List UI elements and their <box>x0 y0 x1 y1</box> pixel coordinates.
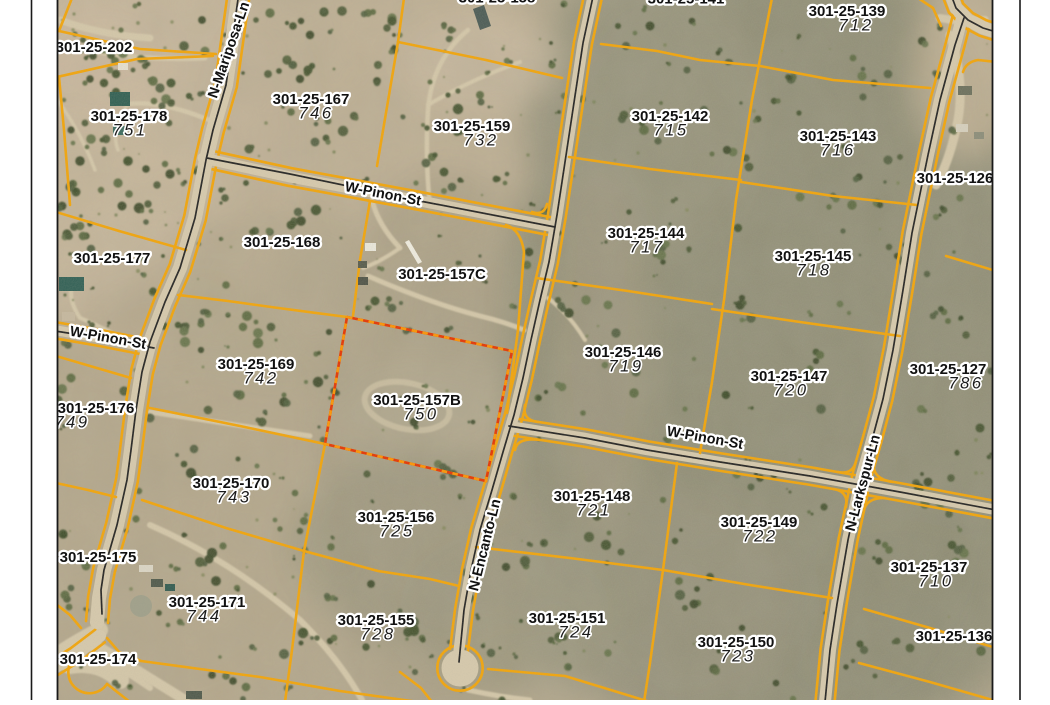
svg-text:301-25-145: 301-25-145 <box>775 248 852 265</box>
svg-text:301-25-156: 301-25-156 <box>358 509 435 526</box>
svg-text:301-25-155: 301-25-155 <box>338 612 415 629</box>
svg-text:301-25-151: 301-25-151 <box>529 610 606 627</box>
svg-text:301-25-157B: 301-25-157B <box>373 392 461 409</box>
svg-text:301-25-178: 301-25-178 <box>91 108 168 125</box>
svg-text:301-25-171: 301-25-171 <box>169 594 246 611</box>
svg-text:301-25-177: 301-25-177 <box>74 250 151 267</box>
svg-text:301-25-139: 301-25-139 <box>809 3 886 20</box>
svg-text:301-25-142: 301-25-142 <box>632 108 709 125</box>
svg-text:301-25-146: 301-25-146 <box>585 344 662 361</box>
svg-text:301-25-127: 301-25-127 <box>910 361 987 378</box>
svg-text:301-25-174: 301-25-174 <box>60 651 137 668</box>
svg-text:301-25-176: 301-25-176 <box>58 400 135 417</box>
svg-text:301-25-167: 301-25-167 <box>273 91 350 108</box>
svg-text:301-25-148: 301-25-148 <box>554 488 631 505</box>
svg-text:301-25-157C: 301-25-157C <box>398 266 486 283</box>
svg-text:301-25-150: 301-25-150 <box>698 634 775 651</box>
svg-text:301-25-136: 301-25-136 <box>916 628 993 645</box>
svg-text:301-25-137: 301-25-137 <box>891 559 968 576</box>
svg-text:301-25-170: 301-25-170 <box>193 475 270 492</box>
svg-text:301-25-147: 301-25-147 <box>751 368 828 385</box>
svg-text:301-25-144: 301-25-144 <box>608 225 685 242</box>
svg-text:301-25-149: 301-25-149 <box>721 514 798 531</box>
svg-text:301-25-143: 301-25-143 <box>800 128 877 145</box>
svg-text:301-25-175: 301-25-175 <box>60 549 137 566</box>
svg-text:301-25-169: 301-25-169 <box>218 356 295 373</box>
svg-text:301-25-158: 301-25-158 <box>459 0 536 7</box>
svg-text:301-25-159: 301-25-159 <box>434 118 511 135</box>
svg-text:301-25-202: 301-25-202 <box>56 39 133 56</box>
svg-text:301-25-168: 301-25-168 <box>244 234 321 251</box>
svg-text:301-25-141: 301-25-141 <box>648 0 725 8</box>
svg-text:301-25-126: 301-25-126 <box>917 170 994 187</box>
